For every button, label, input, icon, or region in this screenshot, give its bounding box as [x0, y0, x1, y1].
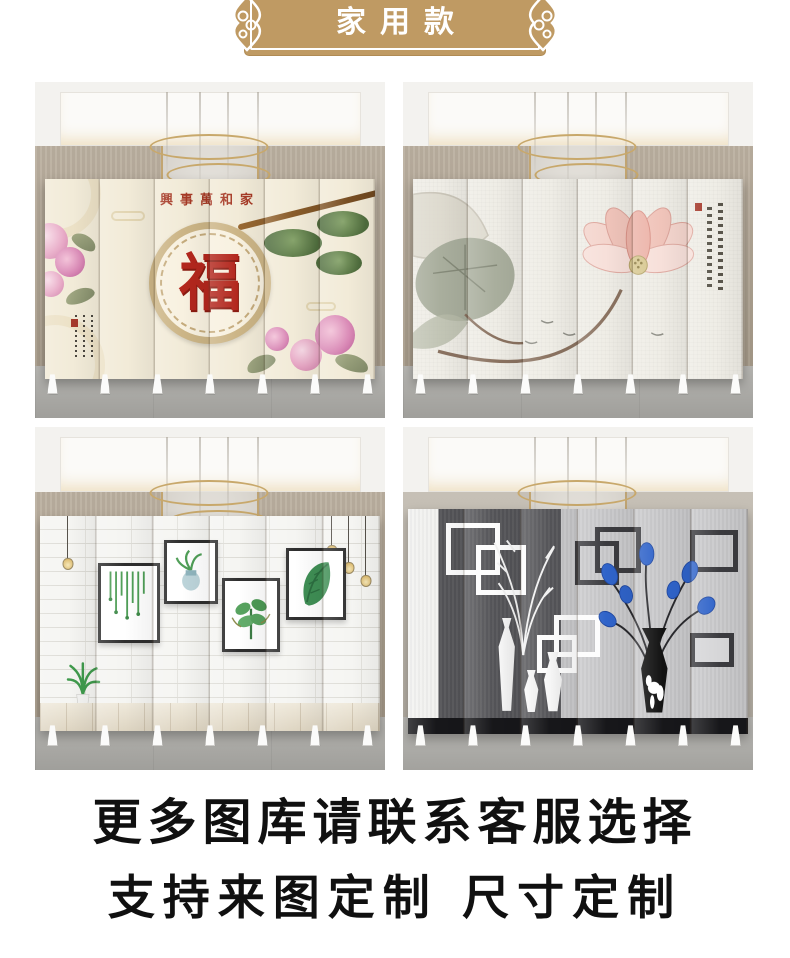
photo-white-brick-screen: [35, 427, 385, 770]
pendant-bulb: [62, 558, 73, 570]
photo-lotus-ink-screen: [403, 82, 753, 418]
banner-frame: 家用款: [250, 0, 540, 50]
white-square-frame: [476, 545, 526, 595]
pendant-wire: [67, 516, 68, 559]
art-frame-green-plant: [222, 578, 280, 652]
product-photo-grid: 興事萬和家 福: [35, 82, 753, 770]
vertical-calligraphy: [718, 203, 723, 291]
folding-screen-fu: 興事萬和家 福: [45, 179, 375, 379]
header-banner: 家用款: [245, 0, 545, 55]
peony-flower: [45, 271, 64, 297]
peony-flower: [55, 247, 85, 277]
vase-floral-pattern: [632, 628, 676, 716]
fu-medallion: 福: [149, 222, 271, 344]
peony-flower: [315, 315, 355, 355]
pine-needles: [264, 229, 322, 257]
footer-line-2: 支持来图定制 尺寸定制: [0, 862, 790, 936]
screen-feet: [415, 725, 741, 746]
folding-screen-lotus: [413, 179, 743, 379]
pendant-wire: [348, 516, 349, 563]
promo-page: { "header": { "label": "家用款", "banner_co…: [0, 0, 790, 958]
folding-screen-modern: [408, 509, 748, 734]
photo-fu-blessing-screen: 興事萬和家 福: [35, 82, 385, 418]
cloud-motif: [306, 302, 336, 311]
art-frame-vines: [98, 563, 160, 643]
art-frame-banana-leaf: [286, 548, 346, 620]
lotus-painting: [413, 179, 743, 379]
screen-feet: [415, 374, 741, 394]
folding-screen-brick: [40, 516, 380, 730]
art-frame-potted-plant: [164, 540, 218, 604]
fu-character: 福: [179, 252, 241, 314]
peony-flower: [265, 327, 289, 351]
footer-line-1: 更多图库请联系客服选择: [0, 782, 790, 862]
peony-flower: [290, 339, 322, 371]
white-vase-tall: [490, 618, 524, 714]
banner-title: 家用款: [322, 8, 468, 38]
peony-leaf: [63, 285, 96, 308]
screen-feet: [47, 725, 373, 746]
ceiling-recess: [60, 437, 361, 492]
white-vase-small: [520, 670, 542, 714]
ceiling-recess: [428, 437, 729, 492]
ceiling-recess: [428, 92, 729, 146]
cloud-motif: [111, 211, 145, 221]
room-ceiling: [35, 427, 385, 492]
pendant-wire: [331, 516, 332, 546]
screen-feet: [47, 374, 373, 394]
red-seal: [71, 319, 78, 327]
red-seal: [695, 203, 702, 211]
photo-modern-vase-screen: [403, 427, 753, 770]
pine-needles: [316, 251, 362, 275]
banner-ornament-right: [523, 0, 563, 52]
peony-leaf: [333, 351, 370, 377]
dark-square-frame: [690, 633, 734, 667]
vertical-calligraphy: [707, 207, 712, 287]
peony-leaf: [244, 351, 278, 377]
dark-square-frame: [575, 541, 619, 585]
ceiling-recess: [60, 92, 361, 146]
footer-calligraphy: 更多图库请联系客服选择 支持来图定制 尺寸定制: [0, 782, 790, 936]
black-vase: [632, 628, 676, 716]
dark-square-frame: [690, 530, 738, 572]
pendant-wire: [365, 516, 366, 576]
pendant-bulb: [360, 575, 371, 587]
pine-needles: [317, 211, 369, 237]
room-ceiling: [403, 82, 753, 146]
room-ceiling: [403, 427, 753, 492]
room-ceiling: [35, 82, 385, 146]
